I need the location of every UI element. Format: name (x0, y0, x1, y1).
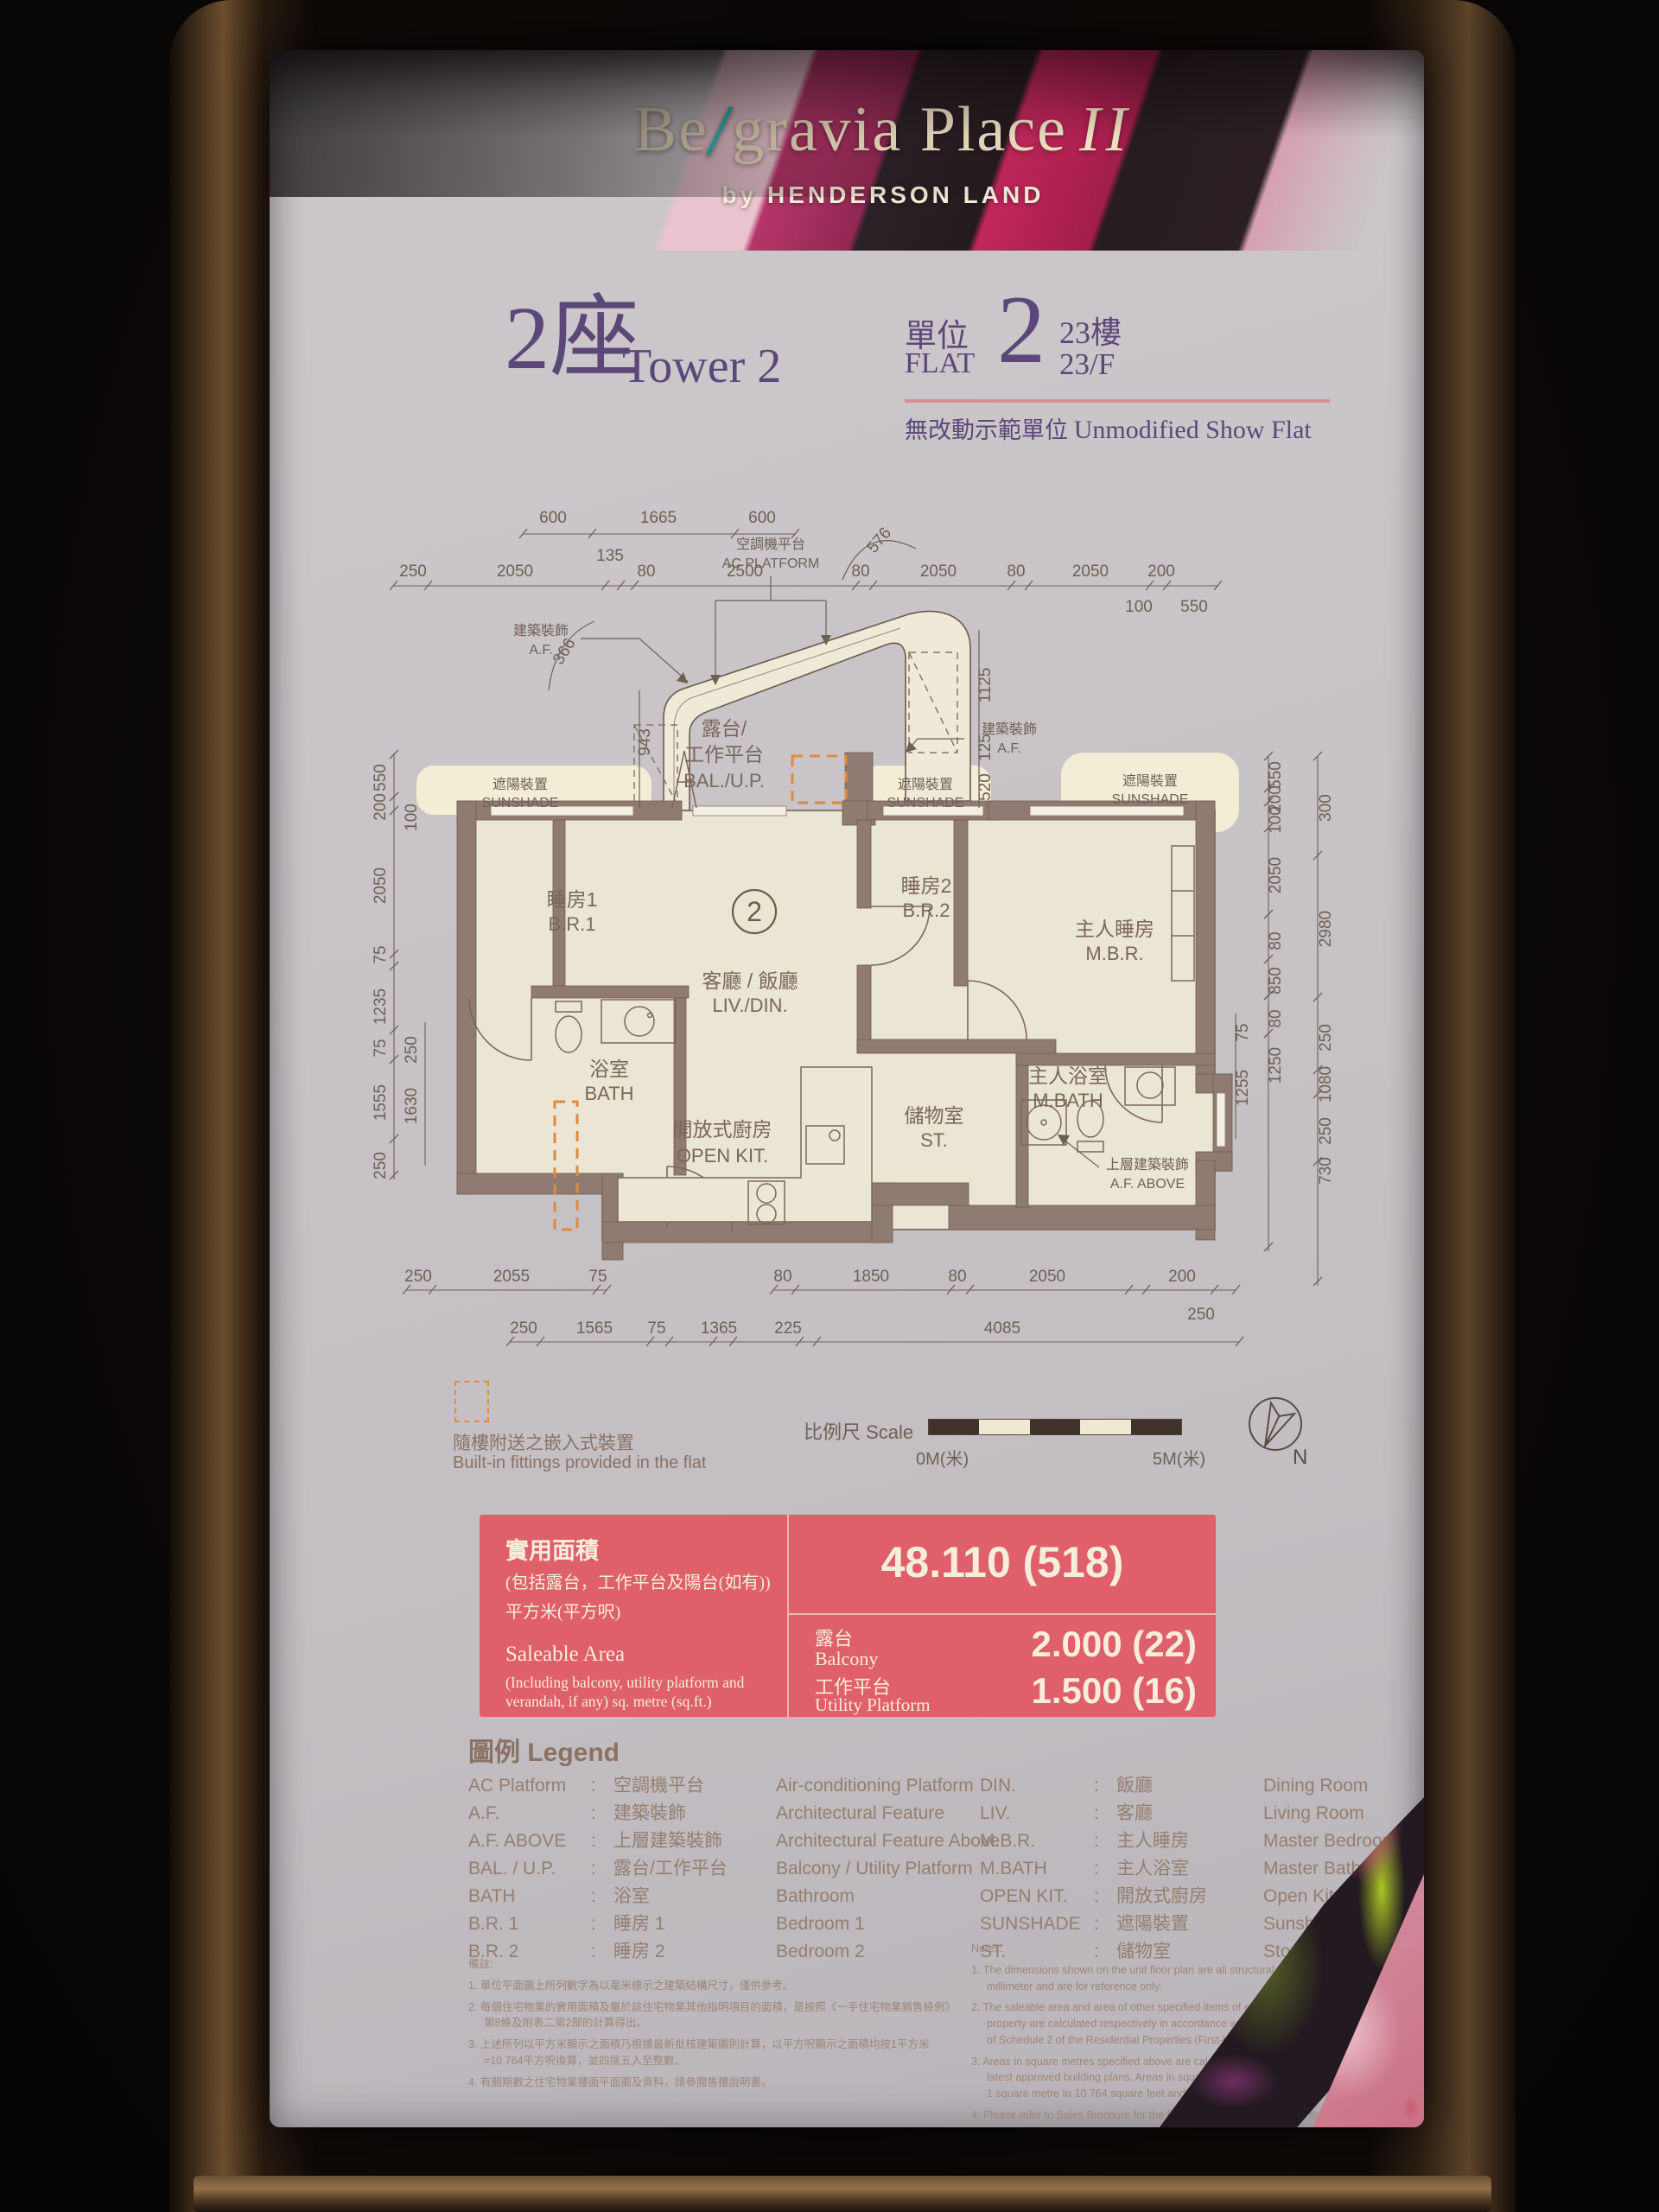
showflat-en: Unmodified Show Flat (1074, 416, 1312, 444)
dim-label: 250 (403, 1036, 421, 1064)
dim-label: 2050 (1029, 1268, 1065, 1286)
utility-platform-value: 1.500 (16) (963, 1670, 1197, 1712)
room-br2-cn: 睡房2 (901, 874, 952, 897)
ac-platform-label-en: AC PLATFORM (722, 556, 820, 571)
dim-label: 520 (976, 773, 995, 801)
notes-chinese: 備註: 1. 單位平面圖上所列數字為以毫米標示之建築結構尺寸，僅供參考。 2. … (468, 1956, 952, 2095)
dim-label: 366 (550, 635, 580, 668)
room-bath-en: BATH (584, 1083, 633, 1104)
dim-label: 1080 (1317, 1066, 1335, 1103)
photo-of-floorplan-lightbox: { "brand": {"pre":"Be","slash":"/","mid"… (0, 0, 1659, 2212)
sunshade-label-en: SUNSHADE (1112, 792, 1189, 807)
dim-label: 600 (539, 509, 567, 527)
area-title-en: Saleable Area (505, 1643, 625, 1667)
ac-platform-label-cn: 空調機平台 (736, 537, 805, 552)
dim-label: 75 (588, 1268, 607, 1286)
room-bath-cn: 浴室 (589, 1058, 629, 1080)
dim-label: 75 (372, 945, 390, 963)
room-mbr-cn: 主人睡房 (1075, 918, 1154, 940)
dim-label: 2050 (1072, 563, 1109, 581)
legend-row: BATH:浴室Bathroom (468, 1882, 978, 1910)
room-liv-cn: 客廳 / 飯廳 (702, 969, 798, 992)
legend-title: 圖例 Legend (468, 1731, 620, 1769)
room-bal-en: BAL./U.P. (683, 770, 765, 791)
dim-label: 550 (1267, 761, 1285, 789)
room-mbath-en: M.BATH (1033, 1090, 1103, 1111)
dim-label: 2055 (493, 1268, 530, 1286)
dim-label: 80 (851, 563, 869, 581)
dim-label: 80 (1007, 563, 1025, 581)
room-mbr-en: M.B.R. (1085, 943, 1143, 964)
room-mbath-cn: 主人浴室 (1028, 1065, 1108, 1087)
room-br1-en: B.R.1 (548, 913, 595, 935)
dim-label: 730 (1317, 1157, 1335, 1185)
dim-label: 80 (948, 1268, 966, 1286)
pink-divider-rule (905, 399, 1330, 403)
dim-label: 1250 (1267, 1047, 1285, 1084)
dim-label: 2980 (1317, 911, 1335, 947)
dim-label: 1555 (372, 1084, 390, 1121)
room-kit-cn: 開放式廚房 (673, 1118, 772, 1141)
dim-label: 550 (1180, 598, 1208, 616)
dim-label: 1255 (1234, 1070, 1252, 1106)
dim-label: 125 (976, 734, 995, 761)
dim-label: 576 (864, 524, 895, 557)
fittings-note-cn: 隨樓附送之嵌入式裝置 (453, 1429, 634, 1455)
dim-label: 550 (372, 764, 390, 791)
dim-label: 100 (403, 804, 421, 831)
room-bal-cn1: 露台/ (702, 717, 747, 740)
dim-label: 200 (1168, 1268, 1196, 1286)
dim-label: 2050 (372, 868, 390, 904)
note-item: 3. 上述所列以平方米顯示之面積乃根據最新批核建築圖則計算，以平方呎顯示之面積均… (484, 2037, 952, 2069)
af-label-en: A.F. (529, 643, 553, 658)
balcony-value: 2.000 (22) (963, 1624, 1197, 1665)
room-st-en: ST. (920, 1129, 948, 1151)
dim-label: 2050 (497, 563, 533, 581)
note-item: 1. 單位平面圖上所列數字為以毫米標示之建築結構尺寸，僅供參考。 (484, 1978, 952, 1994)
dim-label: 80 (1267, 1009, 1285, 1027)
dim-label: 4085 (984, 1319, 1020, 1338)
dim-label: 80 (1267, 931, 1285, 950)
dim-label: 250 (1317, 1117, 1335, 1145)
af-above-label-cn: 上層建築裝飾 (1106, 1157, 1189, 1173)
sunshade-label-en: SUNSHADE (482, 796, 559, 810)
dim-label: 250 (372, 1152, 390, 1179)
area-sub-en: (Including balcony, utility platform and… (505, 1674, 780, 1712)
dim-label: 250 (1187, 1306, 1215, 1324)
legend-left-column: AC Platform:空調機平台Air-conditioning Platfo… (468, 1771, 978, 1965)
showflat-cn: 無改動示範單位 (905, 417, 1068, 443)
flat-label-en: FLAT (905, 347, 975, 380)
tower-number-en: Tower 2 (622, 339, 781, 394)
area-sub-cn: (包括露台，工作平台及陽台(如有)) (505, 1568, 771, 1593)
legend-row: A.F. ABOVE:上層建築裝飾Architectural Feature A… (468, 1827, 978, 1854)
room-br2-en: B.R.2 (902, 899, 950, 921)
dim-label: 1365 (701, 1319, 737, 1338)
dim-label: 100 (1125, 598, 1153, 616)
dim-label: 135 (596, 547, 624, 565)
notes-cn-header: 備註: (468, 1956, 952, 1973)
room-st-cn: 儲物室 (905, 1104, 964, 1127)
frame-shadow (270, 50, 1424, 197)
unit-number-marker: 2 (747, 896, 762, 927)
af-mid-label-cn: 建築裝飾 (982, 721, 1037, 737)
dim-label: 1630 (403, 1088, 421, 1124)
area-unit-cn: 平方米(平方呎) (505, 1598, 620, 1623)
dim-label: 250 (399, 563, 427, 581)
dim-label: 80 (637, 563, 655, 581)
area-total-value: 48.110 (518) (789, 1537, 1216, 1587)
dim-label: 250 (404, 1268, 432, 1286)
dim-label: 200 (1147, 563, 1175, 581)
legend-row: B.R. 1:睡房 1Bedroom 1 (468, 1910, 978, 1937)
dim-label: 250 (510, 1319, 537, 1338)
dim-label: 1665 (640, 509, 677, 527)
dim-label: 1235 (372, 988, 390, 1025)
af-mid-label-en: A.F. (997, 741, 1021, 756)
dim-label: 850 (1267, 967, 1285, 995)
note-item: 2. 每個住宅物業的實用面積及屬於該住宅物業其他指明項目的面積，是按照《一手住宅… (484, 1999, 952, 2032)
dim-label: 2050 (920, 563, 957, 581)
area-title-cn: 實用面積 (505, 1532, 599, 1566)
area-divider-horizontal (789, 1613, 1216, 1615)
scale-five-label: 5M(米) (1153, 1445, 1205, 1470)
north-compass-icon: N (1239, 1389, 1313, 1469)
dim-label: 1565 (576, 1319, 613, 1338)
floor-plan-drawing: 600 1665 600 250 2050 135 80 2500 80 205… (346, 469, 1382, 1372)
floor-en: 23/F (1059, 347, 1115, 382)
af-above-label-en: A.F. ABOVE (1110, 1177, 1185, 1192)
room-liv-en: LIV./DIN. (712, 995, 787, 1016)
scale-bar (928, 1419, 1182, 1435)
sunshade-label-cn: 遮陽裝置 (1122, 773, 1178, 789)
fittings-note-en: Built-in fittings provided in the flat (453, 1453, 707, 1473)
flat-number: 2 (997, 282, 1046, 378)
balcony-label-en: Balcony (815, 1648, 878, 1670)
dim-label: 600 (748, 509, 776, 527)
dim-label: 1850 (853, 1268, 889, 1286)
dim-label: 300 (1317, 794, 1335, 822)
dim-label: 2050 (1267, 857, 1285, 893)
dim-label: 200 (372, 793, 390, 821)
af-label-cn: 建築裝飾 (513, 623, 569, 639)
legend-row: AC Platform:空調機平台Air-conditioning Platfo… (468, 1771, 978, 1799)
sunshade-label-cn: 遮陽裝置 (493, 777, 548, 792)
frame-bottom-rail (194, 2176, 1491, 2212)
tower-number-cn: 2座 (505, 294, 639, 384)
scale-label: 比例尺 Scale (804, 1417, 913, 1445)
corner-flower-collage (1160, 1744, 1424, 2127)
dim-label: 225 (774, 1319, 802, 1338)
room-br1-cn: 睡房1 (547, 888, 598, 911)
dim-label: 1125 (976, 668, 995, 703)
room-bal-cn2: 工作平台 (684, 743, 764, 766)
utility-platform-label-en: Utility Platform (815, 1694, 931, 1716)
dim-label: 75 (372, 1039, 390, 1057)
scale-zero-label: 0M(米) (916, 1445, 969, 1470)
floor-cn: 23樓 (1059, 308, 1122, 353)
legend-row: A.F.:建築裝飾Architectural Feature (468, 1799, 978, 1827)
note-item: 4. 有關期數之住宅物業樓面平面圖及資料，請參閱售樓說明書。 (484, 2075, 952, 2091)
sunshade-label-en: SUNSHADE (887, 796, 964, 810)
legend-row: BAL. / U.P.:露台/工作平台Balcony / Utility Pla… (468, 1854, 978, 1882)
room-kit-en: OPEN KIT. (677, 1145, 768, 1166)
built-in-fitting-symbol (454, 1381, 489, 1422)
dim-label: 75 (1234, 1023, 1252, 1041)
floorplan-poster: Be/gravia PlaceII by HENDERSON LAND 2座 T… (270, 50, 1424, 2127)
dim-label: 100 (1267, 806, 1285, 834)
sunshade-label-cn: 遮陽裝置 (898, 777, 953, 792)
dim-label: 250 (1317, 1024, 1335, 1052)
saleable-area-box: 實用面積 (包括露台，工作平台及陽台(如有)) 平方米(平方呎) Saleabl… (480, 1515, 1216, 1717)
showflat-caption: 無改動示範單位 Unmodified Show Flat (905, 411, 1312, 445)
dim-label: 75 (647, 1319, 665, 1338)
north-label: N (1293, 1446, 1307, 1469)
dim-label: 943 (636, 728, 654, 756)
dim-label: 80 (773, 1268, 791, 1286)
